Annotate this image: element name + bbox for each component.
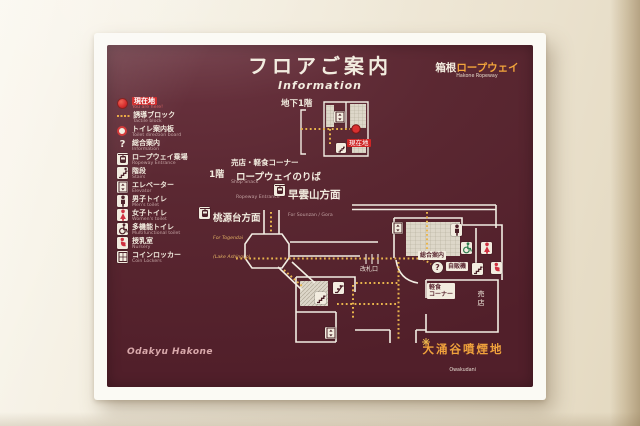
you-are-here-marker — [352, 125, 360, 133]
legend-label-en: Coin Lockers — [132, 259, 170, 264]
map-b1f-stairs-icon — [336, 143, 346, 153]
owakudani-en: Owakudani — [450, 368, 477, 373]
legend-label-en: Multifunctional toilet — [132, 231, 180, 236]
map-information-icon: ? — [432, 262, 443, 273]
legend-label-en: Information — [132, 147, 159, 152]
information-desk-label: 総合案内 — [418, 251, 446, 260]
map-elevator-icon-2 — [325, 327, 336, 339]
map-stairs-icon — [472, 263, 483, 275]
toilet-direction-board-icon — [117, 126, 127, 136]
map-b1f-elevator-icon — [334, 111, 345, 123]
mens-toilet-icon — [117, 195, 128, 207]
map-elevator-icon — [392, 222, 403, 234]
page-title: フロアご案内 — [220, 54, 420, 78]
information-icon: ? — [117, 139, 128, 150]
legend-label-en: Women's toilet — [132, 217, 167, 222]
legend-label-en: Stairs — [132, 175, 145, 180]
coin-lockers-icon — [117, 251, 128, 263]
vending-machine-label: 自販機 — [446, 262, 468, 271]
womens-toilet-icon — [117, 209, 128, 221]
page-subtitle: Information — [220, 79, 420, 92]
owakudani-jp: 大涌谷噴煙地 — [423, 342, 504, 356]
wall-corner-shadow — [610, 0, 640, 426]
sign-panel: フロアご案内 Information 箱根ロープウェイ Hakone Ropew… — [94, 33, 546, 400]
hub-octagon — [245, 234, 289, 268]
odakyu-hakone-logo: Odakyu Hakone — [127, 347, 213, 357]
elevator-icon — [117, 181, 128, 193]
you-are-here-icon — [117, 98, 128, 109]
brand-en: Hakone Ropeway — [434, 74, 520, 79]
legend-label-en: You are here! — [132, 105, 163, 110]
wall-bottom-shadow — [0, 412, 640, 426]
brand-jp-prefix: 箱根 — [435, 62, 456, 74]
legend-label-en: Tactile block — [133, 119, 166, 124]
legend-item-tactile-block: 誘導ブロックTactile block — [117, 111, 229, 126]
ticket-gate-label: 改札口 — [360, 264, 378, 273]
legend-label-en: Ropeway Entrance — [132, 161, 176, 166]
floor-1f-label: 1階 — [209, 167, 224, 180]
b1f-bracket — [301, 110, 306, 154]
ropeway-entrance-icon — [117, 153, 128, 165]
brand-logo: 箱根ロープウェイ Hakone Ropeway — [423, 60, 531, 81]
map-multifunctional-toilet-icon — [461, 242, 472, 254]
stairs-icon — [117, 167, 128, 179]
map-stairs-icon-2 — [315, 292, 326, 304]
legend-item-you-are-here: 現在地You are here! — [117, 97, 229, 112]
map-escalator-icon — [333, 282, 344, 294]
floor-guide-board: フロアご案内 Information 箱根ロープウェイ Hakone Ropew… — [107, 45, 533, 387]
snack-corner-label: 軽食 コーナー — [427, 283, 455, 299]
snack-line2: コーナー — [429, 291, 453, 298]
legend-label-en: Men's toilet — [132, 203, 159, 208]
multifunctional-toilet-icon — [117, 223, 128, 235]
legend-item-elevator: エレベーターElevator — [117, 181, 229, 196]
b1f-you-are-here-label: 現在地 — [347, 139, 371, 147]
sounzan-gondola-icon — [274, 184, 285, 196]
legend-item-information: ? 総合案内Information — [117, 139, 229, 154]
tactile-block-icon — [117, 115, 119, 117]
legend-item-toilet-board: トイレ案内板Toilet direction board — [117, 125, 229, 140]
map-womens-toilet-icon — [481, 242, 492, 254]
map-mens-toilet-icon — [451, 224, 462, 236]
legend-label-en: Toilet direction board — [132, 133, 181, 138]
legend-label-en: Nursery — [132, 245, 150, 250]
legend-label-en: Elevator — [132, 189, 165, 194]
owakudani-label: 大涌谷噴煙地 Owakudani — [403, 338, 523, 376]
togendai-gondola-icon — [199, 207, 210, 219]
brand-jp-accent: ロープウェイ — [456, 62, 518, 74]
ticket-gates — [366, 254, 378, 264]
snack-line1: 軽食 — [429, 284, 441, 291]
nursery-icon — [117, 237, 128, 249]
map-nursery-icon — [491, 262, 502, 274]
floor-map-graphic — [230, 180, 533, 350]
shop-label: 売店 — [476, 290, 486, 308]
map-walls — [245, 205, 502, 343]
legend-item-ropeway: ロープウェイ乗場Ropeway Entrance — [117, 153, 229, 168]
